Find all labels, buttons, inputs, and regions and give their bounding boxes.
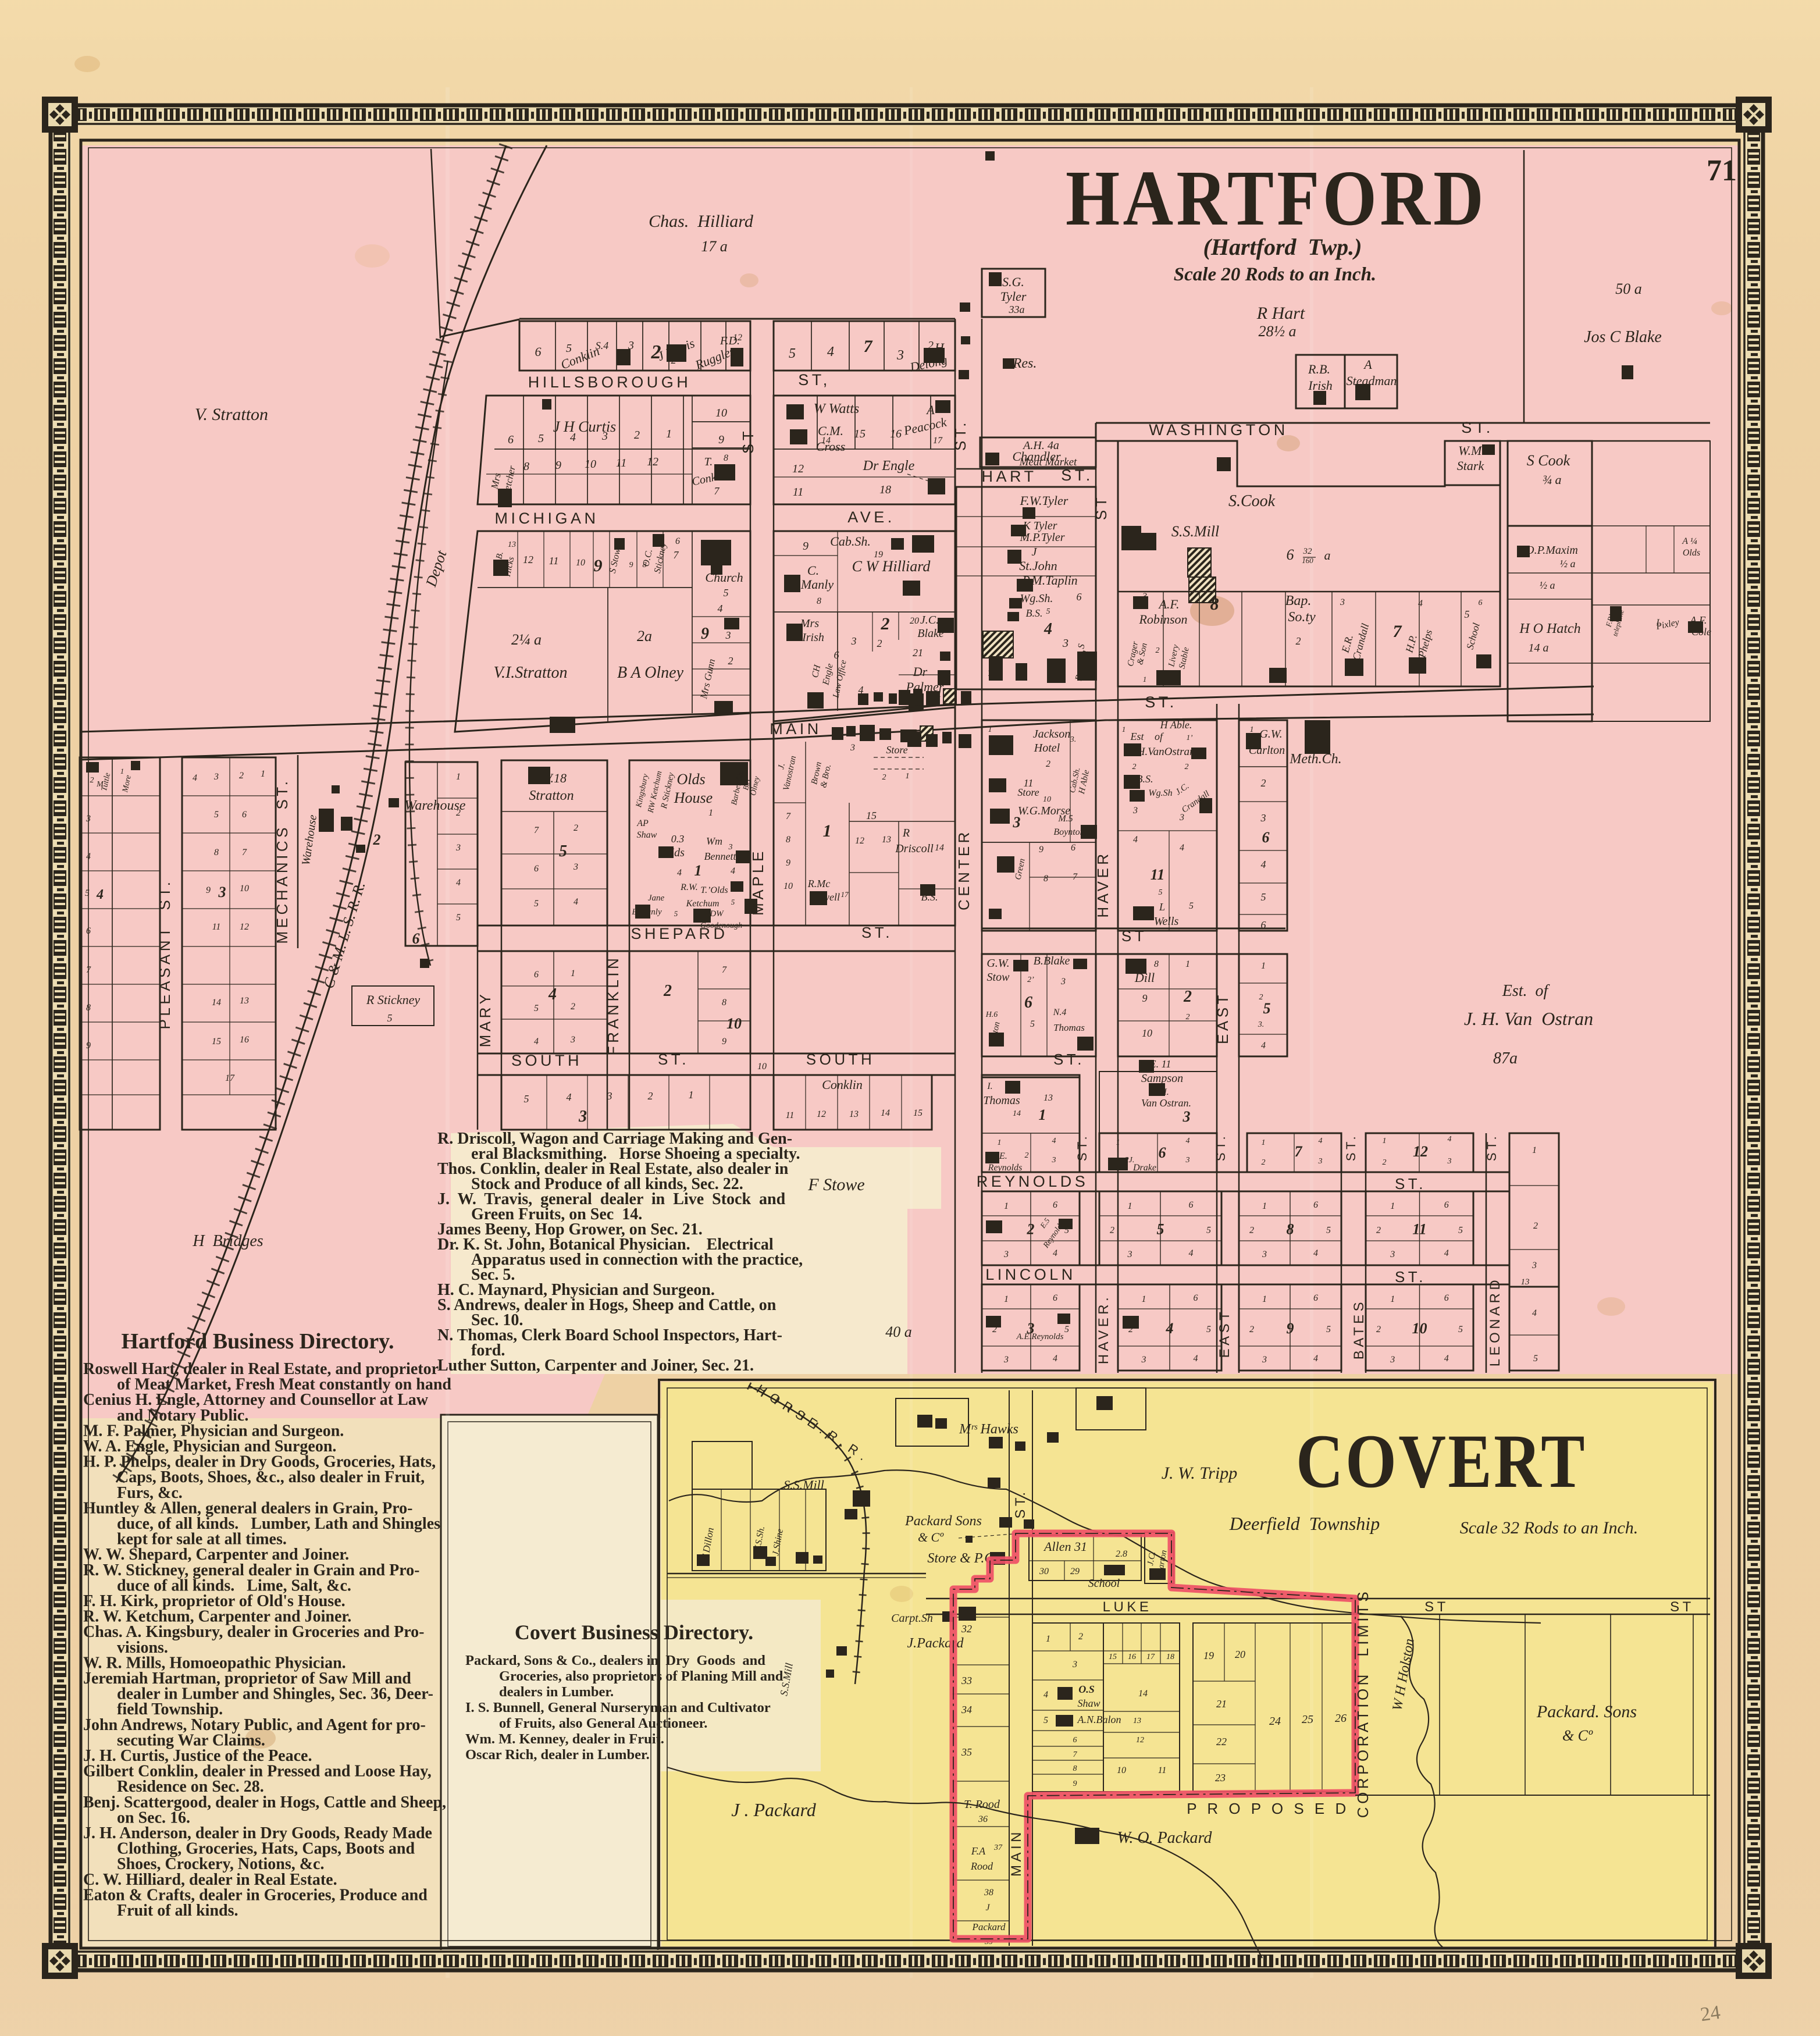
svg-text:ST.: ST. <box>1013 1489 1028 1518</box>
svg-text:5: 5 <box>1189 901 1194 911</box>
svg-text:dealers in Lumber.: dealers in Lumber. <box>499 1684 614 1700</box>
svg-text:6: 6 <box>534 864 539 874</box>
svg-text:3: 3 <box>455 843 461 853</box>
svg-text:2: 2 <box>1249 1226 1254 1236</box>
svg-text:9: 9 <box>786 858 790 868</box>
svg-text:ST.: ST. <box>1461 419 1494 436</box>
svg-text:1’: 1’ <box>1187 733 1193 742</box>
svg-text:F.W.Tyler: F.W.Tyler <box>1020 493 1069 508</box>
svg-text:5: 5 <box>1030 1019 1035 1029</box>
svg-text:7: 7 <box>864 337 873 356</box>
svg-text:5: 5 <box>1533 1354 1538 1364</box>
svg-text:1: 1 <box>1128 1201 1132 1211</box>
svg-text:10: 10 <box>783 881 793 891</box>
svg-text:1: 1 <box>261 769 265 779</box>
svg-text:Groceries, also proprietors of: Groceries, also proprietors of Planing M… <box>499 1668 783 1684</box>
svg-text:Est. of: Est. of <box>1502 982 1550 1000</box>
svg-text:10: 10 <box>240 884 249 894</box>
svg-text:29: 29 <box>1070 1567 1080 1576</box>
svg-text:C.: C. <box>807 563 819 578</box>
svg-text:2: 2 <box>663 982 672 1000</box>
svg-text:3: 3 <box>1390 1250 1395 1259</box>
svg-text:11: 11 <box>793 486 804 499</box>
svg-text:House: House <box>674 789 713 806</box>
svg-text:3: 3 <box>578 1108 587 1126</box>
svg-text:16: 16 <box>890 428 902 440</box>
svg-text:So.ty: So.ty <box>1288 610 1316 625</box>
svg-text:Wm. M. Kenney, dealer in Fruit: Wm. M. Kenney, dealer in Fruit. <box>465 1731 664 1747</box>
svg-text:17: 17 <box>1146 1653 1155 1661</box>
svg-text:Stratton: Stratton <box>529 788 574 803</box>
svg-text:4: 4 <box>1261 859 1266 870</box>
svg-text:10: 10 <box>1412 1320 1427 1337</box>
svg-text:2: 2 <box>1183 988 1192 1006</box>
svg-text:3: 3 <box>1340 597 1345 607</box>
svg-text:9: 9 <box>1287 1320 1294 1337</box>
svg-text:F Stowe: F Stowe <box>807 1175 865 1194</box>
svg-text:a: a <box>1324 548 1331 563</box>
svg-text:2: 2 <box>1262 1158 1266 1167</box>
svg-text:Packard. Sons: Packard. Sons <box>1536 1702 1637 1721</box>
svg-text:3: 3 <box>896 348 904 363</box>
svg-text:1: 1 <box>1185 959 1190 969</box>
svg-text:4: 4 <box>193 773 197 783</box>
svg-text:9: 9 <box>803 540 809 553</box>
svg-text:M.P.Tyler: M.P.Tyler <box>1019 531 1064 544</box>
svg-text:R.Mc: R.Mc <box>807 878 830 889</box>
svg-text:¾ a: ¾ a <box>1543 472 1562 487</box>
svg-text:6: 6 <box>1444 1200 1449 1210</box>
svg-text:2: 2 <box>1132 763 1137 771</box>
svg-text:22: 22 <box>1216 1736 1227 1747</box>
svg-text:EAST: EAST <box>1217 1309 1233 1358</box>
svg-text:Rood: Rood <box>970 1860 993 1872</box>
svg-text:ST.: ST. <box>1395 1268 1426 1286</box>
svg-text:R.B.: R.B. <box>1308 362 1330 376</box>
svg-text:2: 2 <box>1259 993 1263 1002</box>
svg-text:11: 11 <box>786 1110 795 1120</box>
svg-text:9: 9 <box>594 556 603 575</box>
svg-text:16: 16 <box>240 1035 249 1045</box>
svg-text:9: 9 <box>722 1037 726 1047</box>
svg-text:Wells: Wells <box>1154 915 1179 928</box>
svg-text:6: 6 <box>1071 843 1075 853</box>
svg-text:9: 9 <box>1142 992 1148 1004</box>
svg-text:4: 4 <box>96 887 104 902</box>
svg-text:S Cook: S Cook <box>1527 452 1570 469</box>
svg-text:6: 6 <box>1479 599 1483 607</box>
svg-text:32: 32 <box>961 1623 972 1635</box>
svg-text:J. W. Tripp: J. W. Tripp <box>1162 1464 1238 1483</box>
svg-text:6: 6 <box>1189 1200 1194 1210</box>
svg-text:1: 1 <box>1261 961 1266 971</box>
svg-text:Bap.: Bap. <box>1285 593 1312 608</box>
svg-text:1: 1 <box>906 772 910 781</box>
svg-text:5: 5 <box>1159 888 1163 897</box>
svg-text:Covert Business Directory.: Covert Business Directory. <box>515 1621 753 1644</box>
svg-text:14 a: 14 a <box>1529 642 1549 654</box>
svg-text:3: 3 <box>1260 812 1266 824</box>
svg-text:Dill: Dill <box>1134 970 1155 985</box>
svg-text:5: 5 <box>214 810 219 820</box>
svg-text:15: 15 <box>212 1037 221 1047</box>
svg-text:8: 8 <box>86 1003 91 1013</box>
svg-text:2: 2 <box>881 614 890 633</box>
svg-text:4: 4 <box>718 603 723 614</box>
svg-text:15: 15 <box>913 1108 923 1118</box>
svg-text:9: 9 <box>1073 1779 1077 1788</box>
svg-text:Sampson: Sampson <box>1141 1072 1183 1085</box>
svg-text:24: 24 <box>1699 2002 1722 2026</box>
svg-text:Church: Church <box>705 570 743 585</box>
svg-text:5: 5 <box>1465 608 1470 620</box>
svg-text:12: 12 <box>1136 1736 1144 1745</box>
svg-text:12: 12 <box>523 554 533 565</box>
svg-text:CORPORATION LIMITS: CORPORATION LIMITS <box>1354 1589 1372 1818</box>
svg-text:11: 11 <box>549 555 559 567</box>
svg-text:L: L <box>1159 901 1165 913</box>
svg-text:Dr: Dr <box>913 664 928 679</box>
svg-text:Irish: Irish <box>802 631 824 644</box>
svg-text:ST.: ST. <box>952 419 969 451</box>
svg-text:3: 3 <box>1127 1250 1132 1259</box>
svg-text:Est: Est <box>1130 731 1144 742</box>
svg-text:71: 71 <box>1707 154 1737 187</box>
svg-text:11: 11 <box>1151 866 1165 883</box>
svg-text:7: 7 <box>86 965 91 975</box>
svg-text:5: 5 <box>538 432 544 445</box>
svg-text:6: 6 <box>242 810 247 820</box>
svg-text:13: 13 <box>1043 1093 1053 1103</box>
svg-text:HILLSBOROUGH: HILLSBOROUGH <box>528 373 692 391</box>
svg-text:23: 23 <box>1215 1772 1226 1784</box>
svg-text:Deerfield Township: Deerfield Township <box>1229 1513 1380 1534</box>
svg-text:A.F.: A.F. <box>1157 597 1179 611</box>
svg-text:3: 3 <box>1060 977 1066 987</box>
svg-text:21: 21 <box>1216 1698 1227 1710</box>
svg-text:Scale 20 Rods to an Inch.: Scale 20 Rods to an Inch. <box>1174 264 1376 285</box>
svg-text:2: 2 <box>571 1002 575 1012</box>
svg-text:H Bridges: H Bridges <box>192 1232 263 1250</box>
svg-text:14: 14 <box>212 998 221 1008</box>
svg-text:17: 17 <box>225 1073 235 1083</box>
svg-text:1: 1 <box>1046 1634 1050 1644</box>
svg-text:1: 1 <box>1532 1145 1537 1155</box>
svg-text:Wg.Sh.: Wg.Sh. <box>1020 592 1053 605</box>
svg-text:14: 14 <box>881 1108 890 1118</box>
svg-text:1: 1 <box>1390 1294 1395 1304</box>
svg-text:2: 2 <box>728 655 733 667</box>
svg-text:3.: 3. <box>1070 735 1077 744</box>
svg-text:4: 4 <box>1133 835 1138 845</box>
svg-text:2: 2 <box>1296 635 1301 647</box>
svg-text:8: 8 <box>1210 595 1219 614</box>
svg-text:4: 4 <box>548 985 557 1003</box>
svg-text:Cross: Cross <box>816 439 846 454</box>
svg-text:11: 11 <box>1158 1766 1167 1775</box>
svg-text:2: 2 <box>456 808 461 818</box>
svg-text:8: 8 <box>786 835 790 845</box>
svg-text:Jackson: Jackson <box>1033 728 1070 741</box>
svg-text:4: 4 <box>1052 1137 1056 1145</box>
svg-text:Reynolds: Reynolds <box>988 1163 1023 1173</box>
svg-text:7: 7 <box>1073 1750 1078 1759</box>
svg-text:10: 10 <box>585 458 596 471</box>
svg-text:10: 10 <box>726 1015 742 1032</box>
svg-text:Scale 32 Rods to an Inch.: Scale 32 Rods to an Inch. <box>1460 1518 1639 1537</box>
svg-text:Carpt.Sh: Carpt.Sh <box>891 1612 933 1625</box>
svg-text:10: 10 <box>1043 795 1051 804</box>
svg-text:5: 5 <box>534 1003 539 1013</box>
svg-text:35: 35 <box>961 1746 972 1758</box>
svg-text:R: R <box>902 827 910 839</box>
svg-text:H Able.: H Able. <box>1160 719 1192 731</box>
svg-text:13: 13 <box>240 996 249 1006</box>
svg-text:ST.: ST. <box>1213 1133 1228 1161</box>
svg-text:4: 4 <box>1313 1248 1318 1258</box>
svg-text:11: 11 <box>212 922 221 932</box>
svg-text:12: 12 <box>855 836 864 846</box>
svg-text:6: 6 <box>1194 1293 1198 1303</box>
svg-text:17: 17 <box>933 436 943 446</box>
svg-text:J. H. Van Ostran: J. H. Van Ostran <box>1464 1008 1593 1029</box>
svg-text:Apparatus used in connection w: Apparatus used in connection with the pr… <box>471 1251 803 1269</box>
svg-text:1: 1 <box>120 767 124 775</box>
svg-text:3: 3 <box>1003 1250 1009 1259</box>
svg-text:2: 2 <box>1156 646 1160 655</box>
svg-text:6: 6 <box>1053 1293 1057 1303</box>
svg-text:30: 30 <box>1039 1567 1049 1576</box>
svg-text:1: 1 <box>689 1089 694 1101</box>
svg-text:12: 12 <box>733 333 742 343</box>
svg-text:7: 7 <box>1393 622 1402 641</box>
svg-text:Steadman: Steadman <box>1347 373 1397 388</box>
svg-text:2: 2 <box>90 776 94 785</box>
svg-text:P R O P O S E D: P R O P O S E D <box>1187 1800 1349 1817</box>
svg-text:4: 4 <box>86 852 91 862</box>
svg-text:Stow: Stow <box>987 971 1010 984</box>
svg-text:50 a: 50 a <box>1615 280 1642 297</box>
svg-text:DW: DW <box>709 909 724 919</box>
svg-text:3: 3 <box>1062 637 1069 650</box>
svg-text:2: 2 <box>1261 777 1266 789</box>
svg-text:5: 5 <box>674 909 678 918</box>
svg-text:G.W.: G.W. <box>1259 728 1282 741</box>
svg-text:Boynton: Boynton <box>1053 827 1084 837</box>
svg-text:4: 4 <box>570 431 576 444</box>
svg-text:5: 5 <box>524 1093 529 1105</box>
svg-text:6: 6 <box>1073 1736 1077 1745</box>
svg-text:T.: T. <box>704 455 713 468</box>
svg-text:3: 3 <box>851 635 857 647</box>
svg-text:Robinson: Robinson <box>1138 612 1187 627</box>
svg-text:CENTER: CENTER <box>955 829 973 910</box>
svg-text:Store: Store <box>886 744 907 756</box>
svg-text:4: 4 <box>1313 1354 1318 1364</box>
svg-text:5: 5 <box>1206 1325 1211 1334</box>
svg-text:A.E.Reynolds: A.E.Reynolds <box>1016 1332 1064 1341</box>
svg-text:H.6: H.6 <box>985 1010 998 1019</box>
svg-text:5: 5 <box>1458 1226 1463 1236</box>
svg-text:S.S.Mill: S.S.Mill <box>1171 523 1219 540</box>
svg-text:4: 4 <box>1444 1354 1449 1364</box>
svg-text:4: 4 <box>1418 599 1423 608</box>
svg-text:2: 2 <box>574 823 578 833</box>
svg-text:1: 1 <box>1143 675 1147 684</box>
svg-text:Conklin: Conklin <box>822 1077 863 1092</box>
svg-text:18: 18 <box>1166 1653 1174 1661</box>
svg-text:B.Blake: B.Blake <box>1034 955 1070 967</box>
svg-text:4: 4 <box>574 897 578 907</box>
svg-text:Olds: Olds <box>676 771 705 788</box>
svg-text:COVERT: COVERT <box>1296 1418 1587 1504</box>
svg-text:18: 18 <box>879 483 891 496</box>
svg-text:1: 1 <box>1262 1201 1267 1211</box>
svg-text:13: 13 <box>1133 1717 1141 1725</box>
svg-text:6: 6 <box>1261 919 1266 931</box>
svg-text:15: 15 <box>1109 1653 1117 1661</box>
svg-text:2: 2 <box>1078 1632 1083 1642</box>
svg-text:Stark: Stark <box>1457 458 1485 473</box>
svg-text:5: 5 <box>724 587 729 599</box>
svg-text:MICHIGAN: MICHIGAN <box>495 510 599 527</box>
svg-text:3: 3 <box>1132 806 1138 816</box>
svg-text:87a: 87a <box>1493 1049 1518 1067</box>
svg-text:2: 2 <box>882 773 886 782</box>
svg-text:5: 5 <box>1046 607 1050 616</box>
svg-text:2: 2 <box>373 831 381 848</box>
svg-text:8: 8 <box>1073 1764 1077 1773</box>
svg-text:14: 14 <box>1013 1109 1021 1118</box>
svg-text:33a: 33a <box>1009 304 1025 315</box>
svg-text:AVE.: AVE. <box>847 508 895 526</box>
svg-text:9: 9 <box>718 433 724 446</box>
svg-text:6: 6 <box>86 926 91 936</box>
svg-text:& Cº: & Cº <box>1562 1727 1593 1744</box>
svg-text:17: 17 <box>841 890 849 899</box>
svg-text:11: 11 <box>1412 1221 1427 1238</box>
svg-text:0.3: 0.3 <box>671 833 685 845</box>
svg-text:Packard, Sons & Co., dealers i: Packard, Sons & Co., dealers in Dry Good… <box>465 1653 765 1668</box>
svg-text:J: J <box>1032 546 1038 558</box>
svg-text:3: 3 <box>850 743 855 753</box>
svg-text:4: 4 <box>1166 1320 1174 1337</box>
svg-text:4: 4 <box>1189 1248 1194 1258</box>
svg-text:4: 4 <box>1053 1354 1057 1364</box>
svg-text:1: 1 <box>823 821 832 841</box>
svg-text:Thomas: Thomas <box>1053 1022 1085 1033</box>
svg-text:4: 4 <box>1319 1137 1323 1145</box>
svg-text:Jos C Blake: Jos C Blake <box>1584 328 1662 346</box>
svg-text:8: 8 <box>1043 874 1048 884</box>
svg-text:Fruit of all kinds.: Fruit of all kinds. <box>117 1902 238 1920</box>
svg-text:Store: Store <box>1017 786 1039 798</box>
svg-text:4: 4 <box>1180 843 1184 853</box>
svg-text:of Fruits, also General Auctio: of Fruits, also General Auctioneer. <box>499 1715 707 1731</box>
svg-text:3: 3 <box>1531 1261 1537 1270</box>
svg-text:5: 5 <box>731 898 735 906</box>
svg-text:V. Stratton: V. Stratton <box>195 405 268 424</box>
svg-text:11: 11 <box>616 457 627 469</box>
svg-text:LUKE: LUKE <box>1103 1599 1152 1615</box>
svg-text:B.S.: B.S. <box>1026 607 1043 619</box>
svg-text:5: 5 <box>387 1012 393 1024</box>
svg-text:8: 8 <box>724 453 728 463</box>
svg-text:Thomas: Thomas <box>983 1094 1020 1107</box>
svg-text:4: 4 <box>1043 1690 1048 1700</box>
svg-text:9: 9 <box>701 625 709 643</box>
svg-text:Chas. Hilliard: Chas. Hilliard <box>649 212 754 231</box>
svg-text:1: 1 <box>1004 1294 1009 1304</box>
svg-text:F.A: F.A <box>971 1845 986 1857</box>
svg-text:9: 9 <box>629 561 633 569</box>
svg-text:3: 3 <box>573 862 578 872</box>
svg-text:8: 8 <box>523 460 529 473</box>
svg-text:12: 12 <box>240 922 249 932</box>
svg-text:Wg.Sh: Wg.Sh <box>1148 788 1172 798</box>
svg-text:J.C.: J.C. <box>920 614 939 627</box>
svg-text:1: 1 <box>1039 1106 1046 1123</box>
svg-text:2: 2 <box>1025 1151 1029 1160</box>
svg-text:4: 4 <box>1448 1135 1452 1144</box>
svg-text:9: 9 <box>1039 845 1043 855</box>
svg-text:6: 6 <box>1313 1293 1318 1303</box>
svg-text:36: 36 <box>978 1814 988 1824</box>
svg-text:13: 13 <box>508 540 516 549</box>
svg-text:Bennett: Bennett <box>704 850 737 862</box>
svg-text:3: 3 <box>1390 1355 1395 1365</box>
svg-text:Olds: Olds <box>1683 548 1700 558</box>
svg-text:MAPLE: MAPLE <box>749 848 767 916</box>
svg-text:6: 6 <box>1077 591 1082 603</box>
svg-text:12: 12 <box>1413 1143 1428 1160</box>
svg-text:4: 4 <box>1194 1354 1198 1364</box>
svg-text:Packard: Packard <box>972 1921 1006 1932</box>
svg-text:20: 20 <box>910 616 919 626</box>
svg-text:14: 14 <box>935 843 944 853</box>
svg-text:HART: HART <box>981 468 1037 485</box>
svg-text:Packard Sons: Packard Sons <box>904 1514 982 1529</box>
svg-text:Shaw: Shaw <box>637 830 657 840</box>
svg-text:BATES: BATES <box>1351 1299 1367 1359</box>
svg-text:3: 3 <box>1013 814 1021 831</box>
svg-text:Driscoll: Driscoll <box>895 842 934 855</box>
svg-text:7: 7 <box>1295 1143 1303 1160</box>
svg-text:HAVER: HAVER <box>1094 850 1112 917</box>
svg-text:3: 3 <box>1183 1108 1191 1125</box>
svg-text:1: 1 <box>666 428 672 440</box>
svg-text:12: 12 <box>647 455 658 468</box>
svg-text:MARY: MARY <box>476 991 494 1048</box>
svg-text:7: 7 <box>722 965 727 975</box>
svg-text:1: 1 <box>708 808 713 818</box>
svg-text:3: 3 <box>213 772 219 782</box>
svg-text:7: 7 <box>674 549 679 561</box>
svg-text:6: 6 <box>675 536 680 546</box>
svg-text:12: 12 <box>792 462 804 475</box>
svg-text:ST: ST <box>739 428 757 454</box>
svg-text:4: 4 <box>1261 1041 1266 1051</box>
svg-text:2: 2 <box>1027 1221 1035 1238</box>
svg-text:I.: I. <box>986 1081 992 1091</box>
svg-text:R Hart: R Hart <box>1256 304 1305 323</box>
svg-text:REYNOLDS: REYNOLDS <box>977 1173 1089 1190</box>
svg-text:W.M.: W.M. <box>1458 443 1485 458</box>
svg-text:Van Ostran.: Van Ostran. <box>1141 1097 1191 1109</box>
svg-text:Oscar Rich, dealer in Lumber.: Oscar Rich, dealer in Lumber. <box>465 1747 650 1763</box>
svg-text:Hotel: Hotel <box>1034 742 1060 754</box>
svg-text:2: 2 <box>877 638 882 649</box>
